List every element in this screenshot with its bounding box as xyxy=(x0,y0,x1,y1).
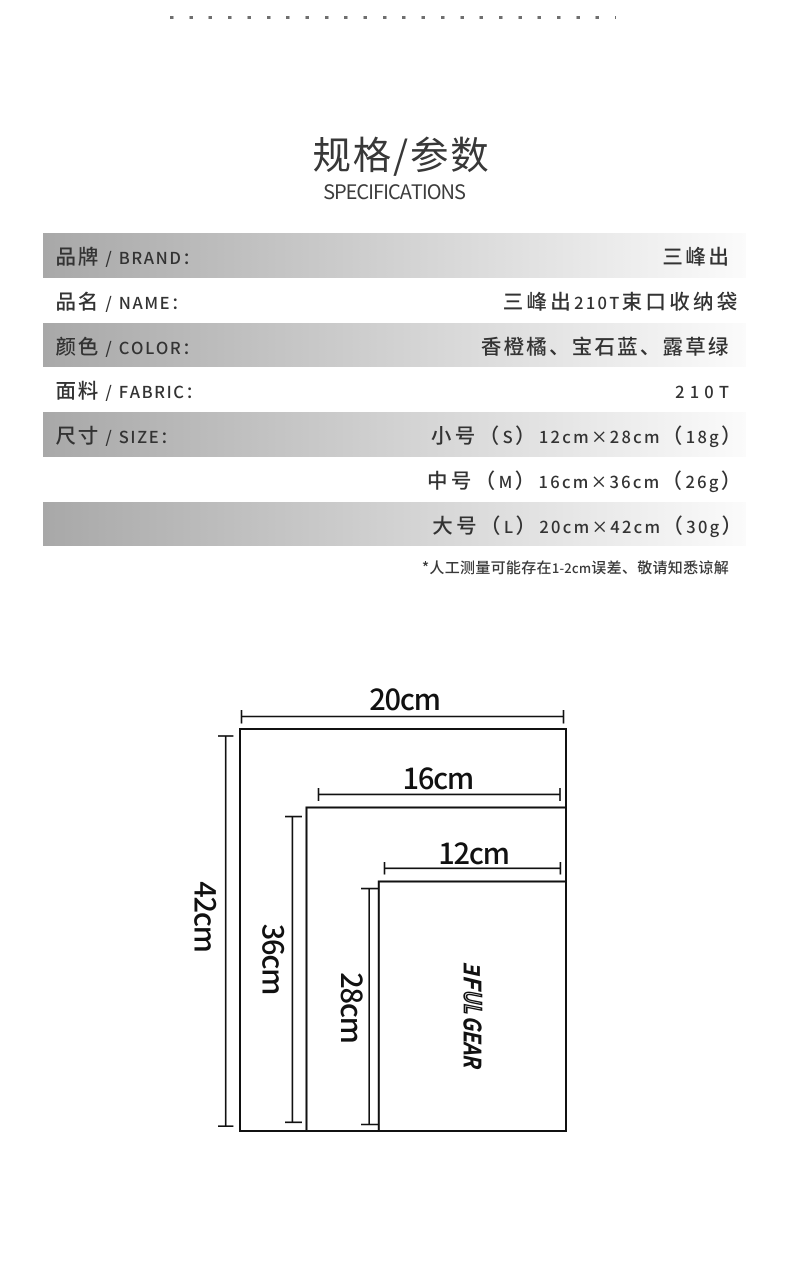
svg-text:36cm: 36cm xyxy=(254,924,296,995)
svg-text:16cm: 16cm xyxy=(402,756,473,798)
svg-text:20cm: 20cm xyxy=(369,677,440,719)
svg-text:28cm: 28cm xyxy=(332,972,374,1043)
svg-text:42cm: 42cm xyxy=(186,881,228,952)
svg-text:UL: UL xyxy=(458,990,492,1014)
svg-text:12cm: 12cm xyxy=(438,831,509,873)
svg-text:GEAR: GEAR xyxy=(457,1016,491,1070)
